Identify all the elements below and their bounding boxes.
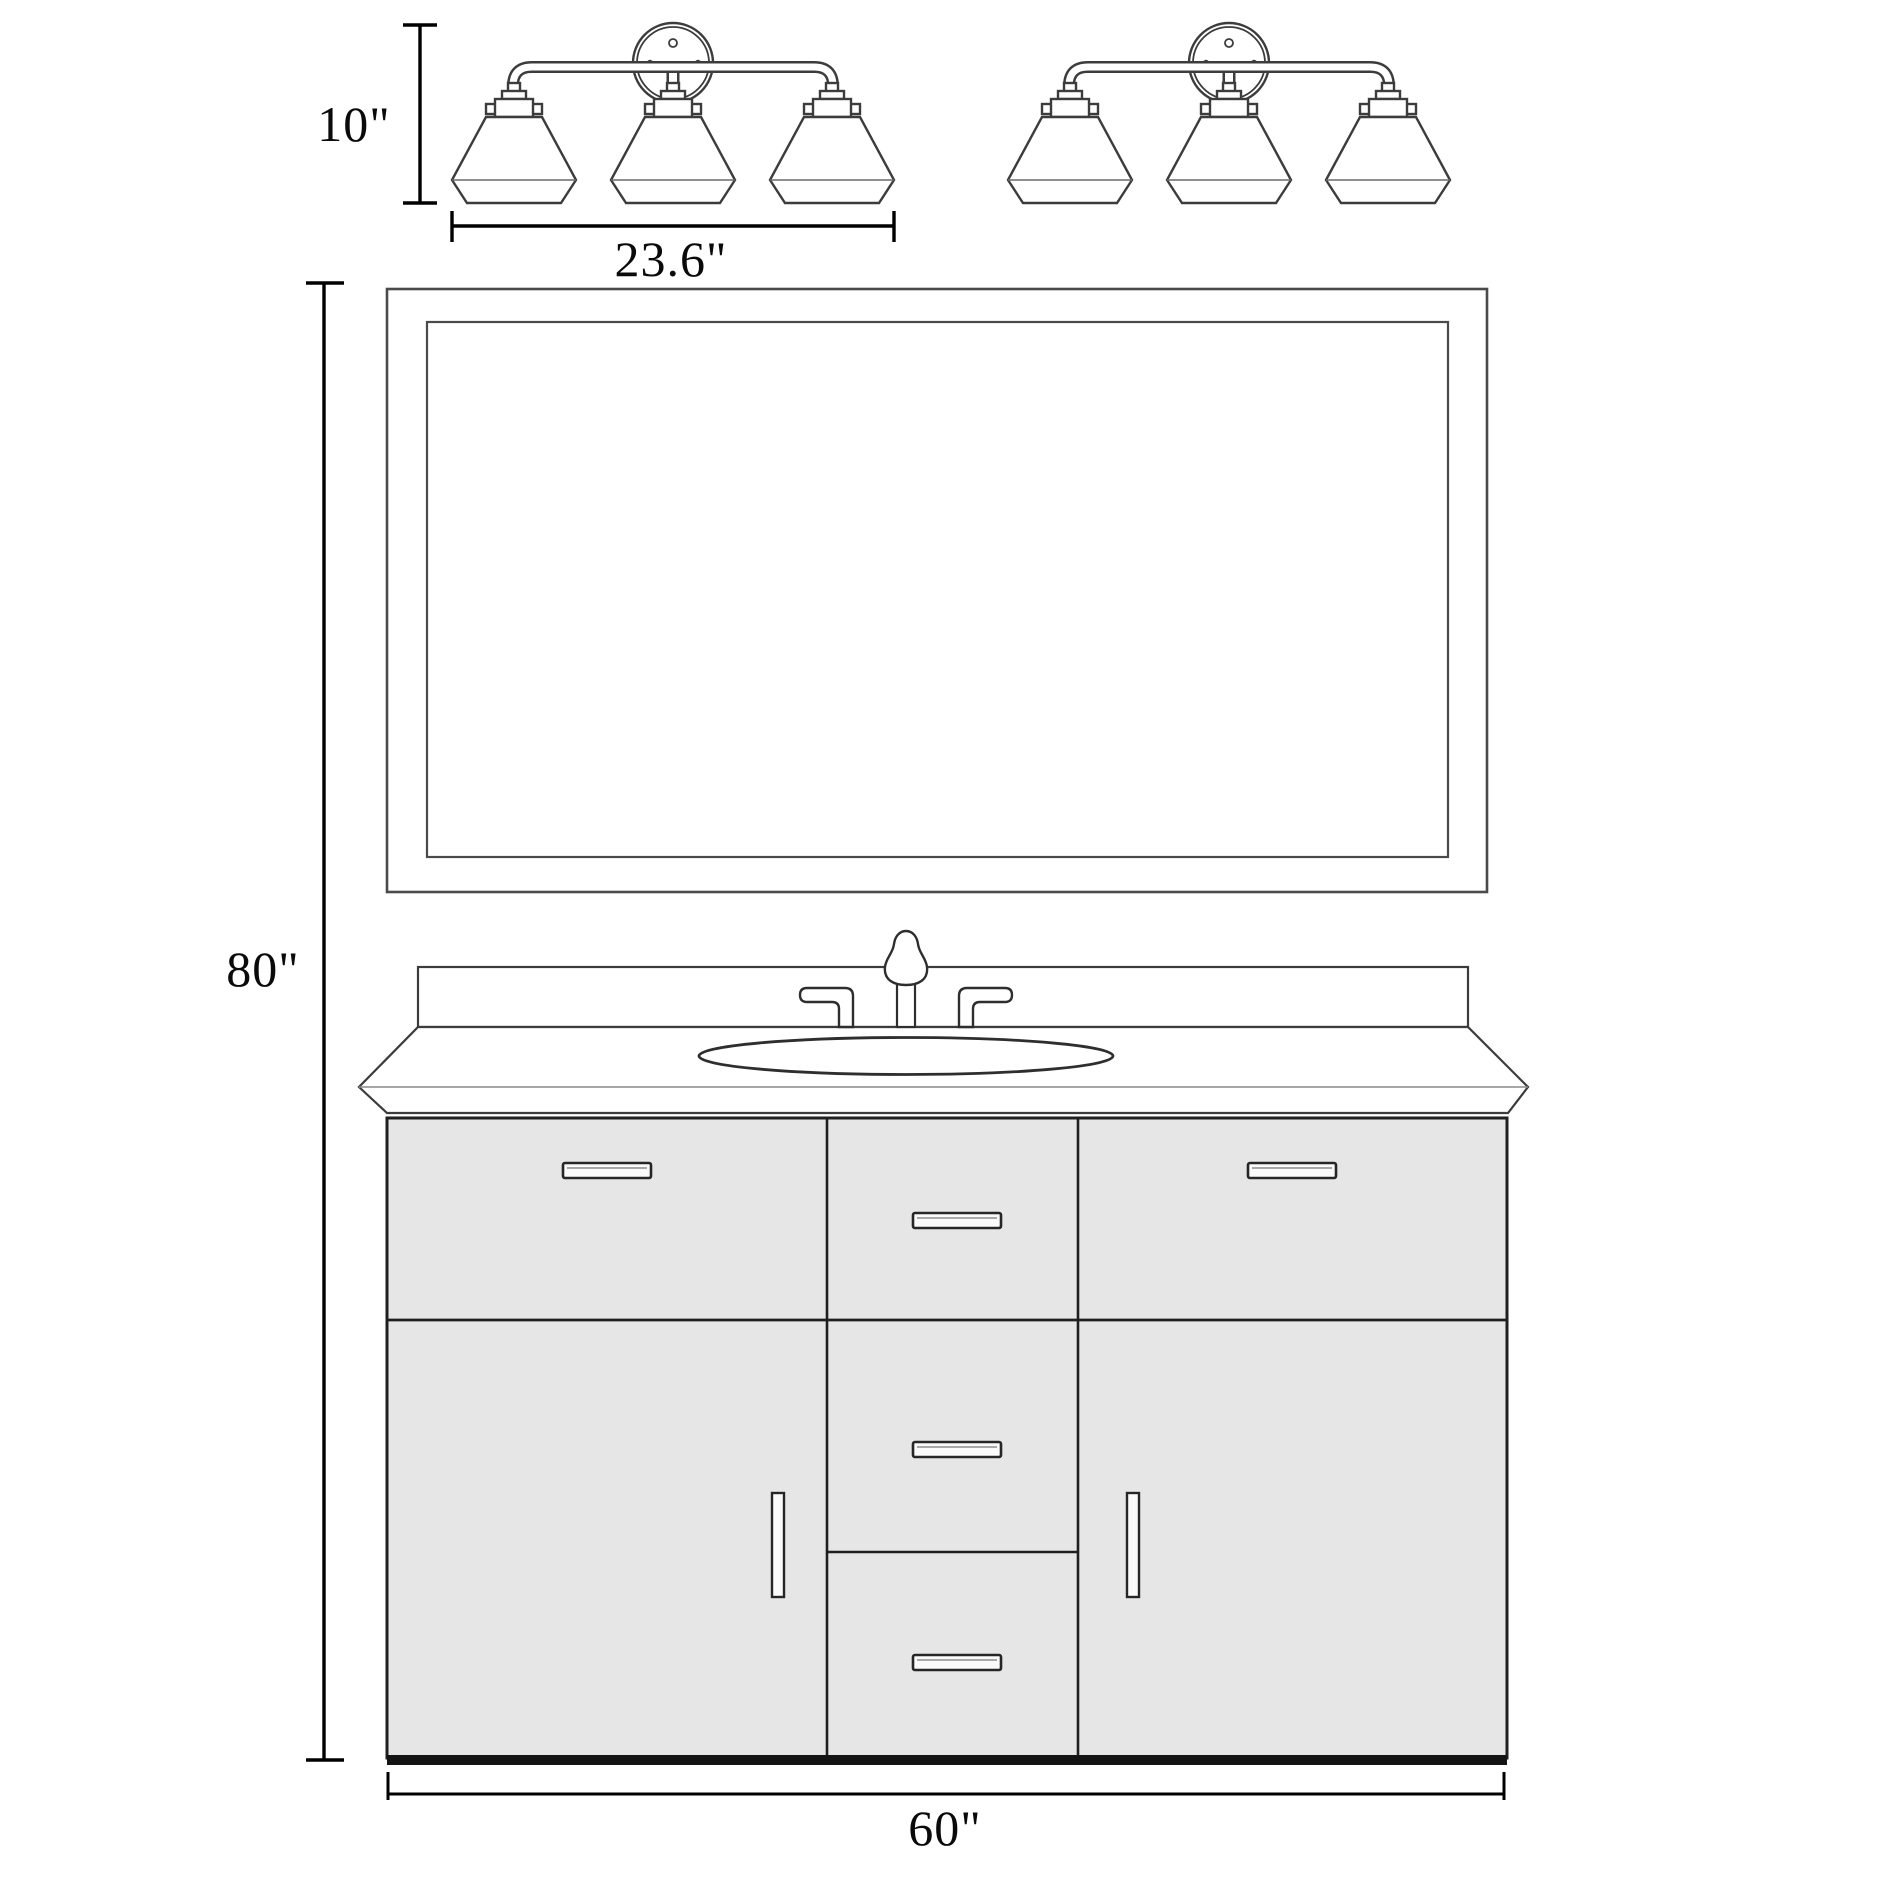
vanity-light-fixture-left [452,23,894,203]
vanity-light-fixture-right [1008,23,1450,203]
door-handle-right [1127,1493,1139,1597]
dimension-line-light-height [403,25,437,203]
dimension-line-overall-height [306,283,344,1760]
dimension-line-vanity-width [388,1772,1504,1800]
sink-basin [699,1038,1113,1075]
faucet-spout [885,931,927,985]
label-vanity-width: 60" [908,1799,981,1857]
mirror [387,289,1487,892]
drawer-handle-middle-2 [913,1442,1001,1457]
drawer-handle-top-right [1248,1163,1336,1178]
backsplash [418,967,1468,1027]
drawer-handle-top-left [563,1163,651,1178]
drawer-handle-middle-3 [913,1655,1001,1670]
label-overall-height: 80" [226,940,299,998]
drawer-handle-middle-1 [913,1213,1001,1228]
door-handle-left [772,1493,784,1597]
cabinet [387,1118,1507,1765]
cabinet-plinth [387,1755,1507,1765]
vanity-spec-diagram: 10" 23.6" 80" 60" [0,0,1889,1901]
mirror-glass [427,322,1448,857]
label-light-fixture-width: 23.6" [615,230,728,288]
label-light-fixture-height: 10" [317,95,390,153]
